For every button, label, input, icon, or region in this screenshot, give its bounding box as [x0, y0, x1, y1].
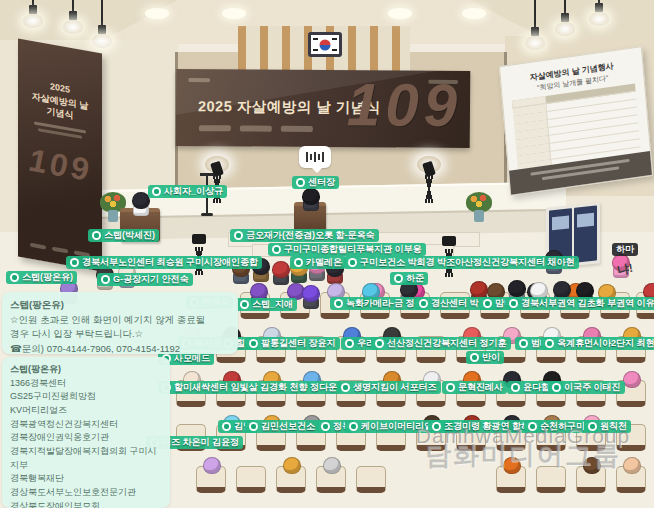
chat-bubble-icon	[272, 245, 281, 254]
chat-bubble-icon	[375, 339, 384, 348]
chat-bubble-icon	[294, 258, 303, 267]
chat-bubble-icon	[483, 299, 492, 308]
notice-line: 경상북도서부노인보호전문기관	[10, 486, 162, 500]
notice-sender: 스텝(팡온유)	[10, 363, 162, 377]
chat-bubble-icon	[92, 231, 101, 240]
player-name: 구미보건소 박희경 박조아산정신건강복지센터 채아현	[360, 256, 575, 269]
stage-banner: 2025 자살예방의 날 기념식 109	[176, 69, 471, 148]
player-name: 팔통길센터 장윤지	[261, 337, 336, 350]
player-name-tag: 할미새싹센터 임빛살 김경화 천향 정다운	[158, 381, 341, 394]
player-name-tag: 옥계휴먼시아2단지 최현아	[541, 337, 654, 350]
notice-line: 경북장애인권익옹호기관	[10, 431, 162, 445]
flower-pot	[466, 192, 492, 212]
player-name: 하마	[616, 243, 634, 256]
notice-line: 경북행복재단	[10, 472, 162, 486]
pendant-light	[534, 0, 536, 28]
notice-sender: 스텝(팡온유)	[10, 298, 230, 313]
chair[interactable]	[356, 466, 386, 493]
pendant-light	[101, 0, 103, 26]
notice-line: ☎문의) 070-4144-7906, 070-4154-1192	[10, 342, 230, 354]
chat-bubble-icon	[470, 353, 479, 362]
player-name: 터즈 차온미 김윤정	[162, 436, 239, 449]
player-name: 스텝_지애	[252, 298, 293, 311]
side-banner-number-109: 109	[18, 139, 102, 191]
seated-avatar[interactable]	[323, 457, 341, 474]
notice-line: 경북지적발달장애복지협의회 구미시지부	[10, 445, 162, 472]
player-name: 구미구미종합틸티푸복지관 이부웅	[284, 243, 422, 256]
player-name: 금오재가(전증겸)오롯 함-문옥숙	[246, 229, 375, 242]
player-name: 이국주 이태진	[564, 381, 621, 394]
sound-level-icon	[299, 146, 331, 168]
chat-bubble-icon	[394, 274, 403, 283]
player-name-tag: 센터장	[292, 176, 339, 189]
player-name-tag: 구미구미종합틸티푸복지관 이부웅	[268, 243, 426, 256]
pendant-light	[598, 0, 600, 4]
player-name-tag: 녹화카메라-금 정선	[330, 297, 428, 310]
recessed-light	[145, 8, 169, 19]
speaker-avatar[interactable]	[302, 188, 320, 205]
player-name: 스텝(박세진)	[104, 229, 155, 242]
chat-bubble-icon	[345, 339, 354, 348]
recessed-light	[388, 8, 412, 19]
korean-flag-icon	[308, 32, 342, 57]
player-name: 문혁진례사	[458, 381, 503, 394]
standing-avatar[interactable]	[302, 285, 320, 302]
player-name-tag: 금오재가(전증겸)오롯 함-문옥숙	[230, 229, 379, 242]
notice-line: ☆인원 초과로 인해 화면이 예기치 않게 종료될	[10, 313, 230, 328]
notice-line: 경상북도장애인부모회	[10, 500, 162, 508]
player-name: 하준	[406, 272, 424, 285]
recessed-light	[222, 8, 246, 19]
chat-bubble-icon	[509, 299, 518, 308]
chat-bubble-icon	[249, 339, 258, 348]
player-name-tag: 팔통길센터 장윤지	[245, 337, 340, 350]
pendant-light	[72, 0, 74, 12]
seated-avatar[interactable]	[623, 371, 641, 388]
player-name-tag: 경북서부권역 김초화 부권역 이유정	[505, 297, 654, 310]
notice-line: GS25구미진평희망점	[10, 390, 162, 404]
chat-bubble-icon	[101, 275, 110, 284]
player-name-tag: 경북서부노인센터 최승원 구미시장애인종합	[66, 256, 262, 269]
player-name-tag: 문혁진례사	[442, 381, 507, 394]
player-name-tag: 하준	[390, 272, 428, 285]
chat-bubble-icon	[588, 422, 597, 431]
chat-bubble-icon	[296, 178, 305, 187]
chat-bubble-icon	[334, 299, 343, 308]
player-name: 생명지킴이 서포터즈	[353, 381, 437, 394]
player-name: 사회자_이상규	[164, 185, 223, 198]
pendant-light	[32, 0, 34, 6]
player-name-tag: 반이	[466, 351, 504, 364]
player-name-tag: 생명지킴이 서포터즈	[337, 381, 441, 394]
notice-line: 경우 다시 입장 부탁드립니다.☆	[10, 327, 230, 342]
player-name-tag: 이국주 이태진	[548, 381, 625, 394]
player-name: 옥계휴먼시아2단지 최현아	[557, 337, 654, 350]
standing-avatar[interactable]	[470, 281, 488, 298]
player-name: G-공장지기 안전숙	[113, 273, 189, 286]
player-name: 스텝(팡온유)	[22, 271, 73, 284]
player-name: 카멜레온	[306, 256, 342, 269]
player-name-tag: 사회자_이상규	[148, 185, 227, 198]
chat-bubble-icon	[348, 258, 357, 267]
player-name-tag: 스텝(박세진)	[88, 229, 159, 242]
chat-bubble-icon	[545, 339, 554, 348]
player-name: 원칙천	[600, 420, 627, 433]
player-name-tag: 스텝_지애	[236, 298, 297, 311]
chat-bubble-icon	[432, 422, 441, 431]
spotlight	[414, 156, 444, 204]
chat-bubble-icon	[519, 339, 528, 348]
notice-line: 1366경북센터	[10, 377, 162, 391]
player-name: 녹화카메라-금 정선	[346, 297, 424, 310]
chat-bubble-icon	[341, 383, 350, 392]
chat-bubble-icon	[552, 383, 561, 392]
sponsor-logos	[199, 125, 313, 132]
camera-tripod	[434, 230, 464, 278]
player-name-tag: G-공장지기 안전숙	[97, 273, 193, 286]
chat-bubble-icon	[528, 422, 537, 431]
seated-avatar[interactable]	[283, 457, 301, 474]
player-name-tag: 구미보건소 박희경 박조아산정신건강복지센터 채아현	[344, 256, 579, 269]
standing-avatar[interactable]	[553, 281, 571, 298]
chat-bubble-icon	[240, 300, 249, 309]
chat-bubble-icon	[511, 383, 520, 392]
player-name: 선산정신건강복지센터 정기훈	[387, 337, 507, 350]
player-name: 반이	[482, 351, 500, 364]
player-name-tag: 스텝(팡온유)	[6, 271, 77, 284]
chat-bubble-icon	[70, 258, 79, 267]
seated-avatar[interactable]	[583, 457, 601, 474]
player-name: 경북서부권역 김초화 부권역 이유정	[521, 297, 654, 310]
chat-notice-box: 스텝(팡온유)☆인원 초과로 인해 화면이 예기치 않게 종료될경우 다시 입장…	[2, 292, 238, 354]
player-name-tag: 원칙천	[584, 420, 631, 433]
player-name-tag: 선산정신건강복지센터 정기훈	[371, 337, 511, 350]
player-name-tag: 카멜레온	[290, 256, 346, 269]
chair[interactable]	[236, 466, 266, 493]
standing-avatar[interactable]	[508, 280, 526, 297]
chat-bubble-icon	[349, 422, 358, 431]
banner-number-109: 109	[347, 70, 463, 140]
pendant-light	[564, 0, 566, 14]
seated-avatar[interactable]	[203, 457, 221, 474]
notice-line: 경북광역정신건강복지센터	[10, 418, 162, 432]
chat-bubble-icon	[419, 299, 428, 308]
chat-bubble-icon	[152, 187, 161, 196]
player-name: 센터장	[308, 176, 335, 189]
player-name-tag: 하마	[612, 243, 638, 256]
seated-avatar[interactable]	[503, 457, 521, 474]
standing-avatar[interactable]	[272, 261, 290, 278]
player-name: 할미새싹센터 임빛살 김경화 천향 정다운	[174, 381, 337, 394]
virtual-event-room: 2025 자살예방의 날 기념식 109 2025 자살예방의 날 기념식 10…	[0, 0, 654, 508]
notice-line: KV머티리얼즈	[10, 404, 162, 418]
player-name: 경북서부노인센터 최승원 구미시장애인종합	[82, 256, 258, 269]
chat-bubble-icon	[222, 422, 231, 431]
chat-bubble-icon	[321, 422, 330, 431]
schedule-board[interactable]: 자살예방의 날 기념행사 "희망의 날개를 펼치다"	[499, 46, 653, 196]
chat-bubble-icon	[10, 273, 19, 282]
chat-bubble-icon	[234, 231, 243, 240]
chat-bubble-icon	[249, 422, 258, 431]
chat-notice-box: 스텝(팡온유)1366경북센터GS25구미진평희망점KV머티리얼즈경북광역정신건…	[2, 357, 170, 508]
chat-bubble-icon	[446, 383, 455, 392]
seated-avatar[interactable]	[623, 457, 641, 474]
chair[interactable]	[536, 466, 566, 493]
recessed-light	[462, 8, 486, 19]
player-name: 냐!	[616, 262, 634, 278]
